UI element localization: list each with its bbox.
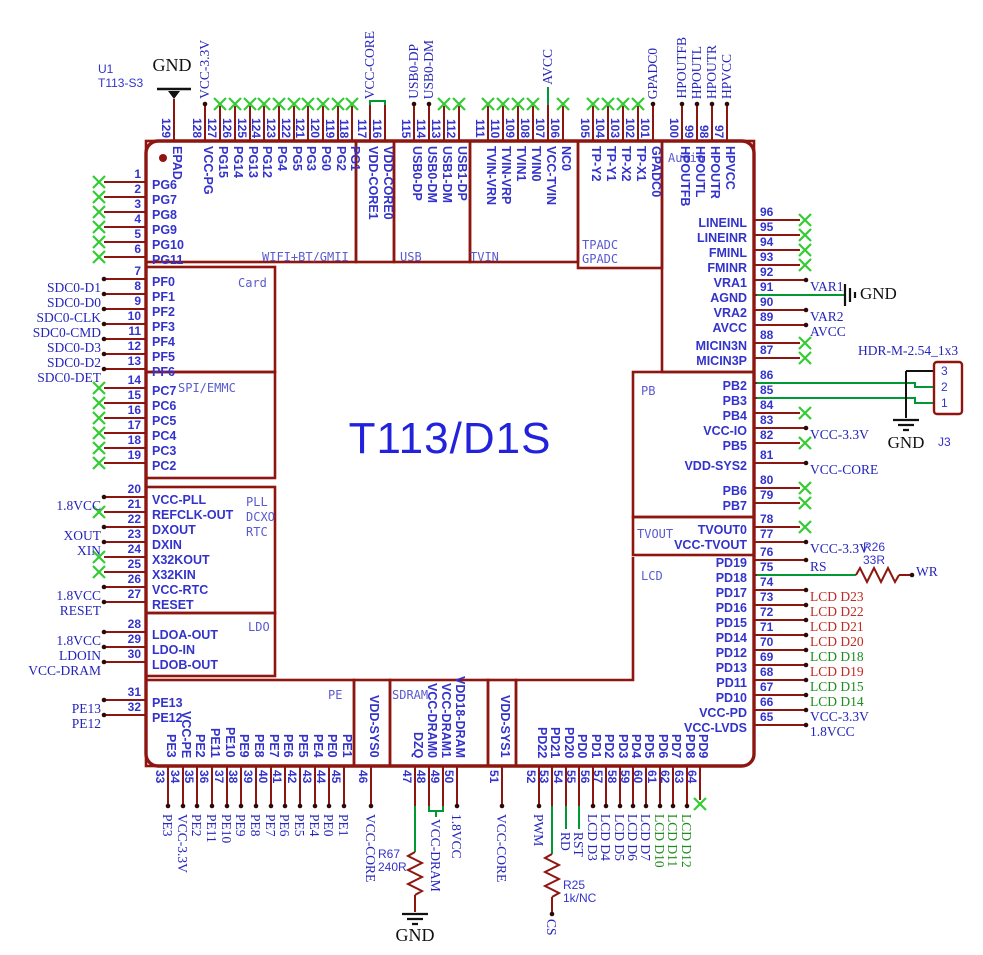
section-label-gpadc: GPADC [582, 253, 618, 266]
pin-name-PD13: PD13 [632, 661, 747, 675]
pin-name-VDD18-DRAM: VDD18-DRAM [453, 676, 467, 758]
net-label-1.8VCC: 1.8VCC [810, 724, 855, 739]
pin-name-PE2: PE2 [193, 734, 207, 758]
net-label-LCD D22: LCD D22 [810, 604, 864, 619]
pin-name-PC5: PC5 [152, 414, 277, 428]
pin-number-118: 118 [337, 119, 350, 138]
pin-name-TVIN0: TVIN0 [529, 146, 543, 181]
net-endpoint-dot [500, 804, 505, 809]
header-pin-2: 2 [941, 381, 948, 394]
no-connect-x [799, 352, 811, 364]
pin-name-HPVCC: HPVCC [723, 146, 737, 190]
net-endpoint-dot [671, 804, 676, 809]
pin-number-98: 98 [697, 125, 710, 138]
gnd-label-header: GND [886, 433, 926, 452]
net-endpoint-dot [427, 102, 432, 107]
pin-name-PB2: PB2 [632, 379, 747, 393]
net-label-HPOUTFB: HPOUTFB [674, 37, 689, 99]
pin-name-TVIN1: TVIN1 [514, 146, 528, 181]
net-label-LCD D19: LCD D19 [810, 664, 864, 679]
net-endpoint-dot [166, 804, 171, 809]
pin-name-PF6: PF6 [152, 365, 277, 379]
net-endpoint-dot [804, 426, 809, 431]
pin-name-PD21: PD21 [548, 727, 562, 758]
net-label-VCC-3.3V: VCC-3.3V [810, 541, 869, 556]
pin-name-LDO-IN: LDO-IN [152, 643, 277, 657]
pin-name-PG14: PG14 [231, 146, 245, 178]
pin-number-49: 49 [428, 770, 441, 783]
pin-name-PD12: PD12 [632, 646, 747, 660]
pin-number-9: 9 [101, 295, 141, 308]
pin-number-109: 109 [503, 118, 516, 138]
pin-number-100: 100 [667, 118, 680, 138]
net-label-1.8VCC: 1.8VCC [11, 633, 101, 648]
pin-name-VDD-SYS2: VDD-SYS2 [632, 459, 747, 473]
net-label-PE9: PE9 [233, 814, 248, 837]
net-label-VAR1: VAR1 [810, 279, 844, 294]
net-endpoint-dot [618, 804, 623, 809]
pin-name-TP-X1: TP-X1 [634, 146, 648, 181]
gnd-symbol-header [893, 420, 919, 430]
pin-name-PB6: PB6 [632, 484, 747, 498]
pin-name-PD19: PD19 [632, 556, 747, 570]
net-endpoint-dot [804, 603, 809, 608]
pin-name-PD4: PD4 [629, 734, 643, 758]
net-label-LCD D20: LCD D20 [810, 634, 864, 649]
pin-name-PG15: PG15 [216, 146, 230, 178]
pin-name-PG9: PG9 [152, 223, 277, 237]
pin-name-X32KIN: X32KIN [152, 568, 277, 582]
pin-name-PG4: PG4 [275, 146, 289, 171]
pin-number-106: 106 [548, 118, 561, 138]
pin-number-129: 129 [159, 118, 172, 138]
pin-name-TP-X2: TP-X2 [619, 146, 633, 181]
pin-name-USB1-DP: USB1-DP [455, 146, 469, 201]
net-label-USB0-DP: USB0-DP [406, 44, 421, 99]
net-endpoint-dot [412, 102, 417, 107]
pin-name-TP-Y2: TP-Y2 [589, 146, 603, 181]
pin-number-113: 113 [429, 119, 442, 138]
pin-name-PC4: PC4 [152, 429, 277, 443]
pin-number-112: 112 [444, 119, 457, 138]
net-label-wr: WR [916, 564, 938, 579]
pin-name-PC7: PC7 [152, 384, 277, 398]
net-label-GPADC0: GPADC0 [645, 48, 660, 99]
pin-number-105: 105 [578, 118, 591, 138]
net-label-LCD D15: LCD D15 [810, 679, 864, 694]
pin-name-PF2: PF2 [152, 305, 277, 319]
pin-number-44: 44 [314, 770, 327, 783]
net-endpoint-dot [604, 804, 609, 809]
no-connect-x [799, 214, 811, 226]
gnd-label-r67: GND [393, 926, 437, 945]
gnd-symbol-r67 [402, 914, 428, 924]
pin-name-DXIN: DXIN [152, 538, 277, 552]
pin-name-VCC-TVIN: VCC-TVIN [544, 146, 558, 205]
net-label-PE8: PE8 [248, 814, 263, 837]
pin-name-VCC-LVDS: VCC-LVDS [632, 721, 747, 735]
pin-name-USB0-DP: USB0-DP [410, 146, 424, 201]
net-label-LCD D7: LCD D7 [638, 814, 653, 861]
pin-name-PG5: PG5 [290, 146, 304, 171]
pin-number-73: 73 [760, 591, 800, 604]
net-label-cs: CS [544, 919, 559, 936]
net-label-PE5: PE5 [292, 814, 307, 837]
pin-number-29: 29 [101, 633, 141, 646]
pin-number-90: 90 [760, 296, 800, 309]
pin-number-11: 11 [101, 325, 141, 338]
pin-name-FMINR: FMINR [632, 261, 747, 275]
pin-number-21: 21 [101, 498, 141, 511]
pin-number-37: 37 [212, 770, 225, 783]
pin-name-DZQ: DZQ [411, 732, 425, 758]
pin-number-28: 28 [101, 618, 141, 631]
net-label-VCC-CORE: VCC-CORE [810, 462, 878, 477]
net-endpoint-dot [455, 804, 460, 809]
pin-number-63: 63 [672, 770, 685, 783]
no-connect-x [799, 259, 811, 271]
pin-name-PE7: PE7 [267, 734, 281, 758]
net-endpoint-dot [804, 648, 809, 653]
pin-number-65: 65 [760, 711, 800, 724]
pin-name-PE3: PE3 [164, 734, 178, 758]
pin-name-VCC-PD: VCC-PD [632, 706, 747, 720]
pin-number-78: 78 [760, 513, 800, 526]
pin-number-16: 16 [101, 404, 141, 417]
pin-name-PD14: PD14 [632, 631, 747, 645]
net-endpoint-dot [181, 804, 186, 809]
pin-number-57: 57 [591, 770, 604, 783]
pin-name-PG7: PG7 [152, 193, 277, 207]
pin-number-12: 12 [101, 340, 141, 353]
net-endpoint-dot [651, 102, 656, 107]
net-endpoint-dot [804, 558, 809, 563]
pin-name-AVCC: AVCC [632, 321, 747, 335]
pin-name-PE10: PE10 [223, 727, 237, 758]
pin-number-59: 59 [618, 770, 631, 783]
pin-number-14: 14 [101, 374, 141, 387]
pin-number-64: 64 [685, 770, 698, 783]
net-label-HPVCC: HPVCC [719, 54, 734, 99]
pin-number-46: 46 [356, 770, 369, 783]
gnd-label-agnd: GND [860, 284, 897, 303]
pin-number-77: 77 [760, 528, 800, 541]
net-endpoint-dot [269, 804, 274, 809]
pin-number-53: 53 [537, 770, 550, 783]
pin-number-104: 104 [593, 118, 606, 138]
section-label-sdram: SDRAM [392, 689, 428, 702]
pin-name-VDD-SYS0: VDD-SYS0 [367, 695, 381, 758]
net-label-XOUT: XOUT [11, 528, 101, 543]
pin-number-55: 55 [564, 770, 577, 783]
pin-number-79: 79 [760, 489, 800, 502]
pin-name-PG0: PG0 [319, 146, 333, 171]
pin-number-30: 30 [101, 648, 141, 661]
resistor-r25[interactable] [545, 854, 559, 916]
net-label-PE4: PE4 [307, 814, 322, 837]
pin-name-PF1: PF1 [152, 290, 277, 304]
net-label-SDC0-CLK: SDC0-CLK [11, 310, 101, 325]
pin-number-20: 20 [101, 483, 141, 496]
pin-number-93: 93 [760, 251, 800, 264]
net-endpoint-dot [313, 804, 318, 809]
pin-name-PE13: PE13 [152, 696, 277, 710]
pin-name-PE4: PE4 [311, 734, 325, 758]
net-label-VAR2: VAR2 [810, 309, 844, 324]
pin-number-5: 5 [101, 228, 141, 241]
schematic-drawing [0, 0, 983, 955]
pin-name-HPOUTL: HPOUTL [693, 146, 707, 197]
net-label-VCC-3.3V: VCC-3.3V [810, 709, 869, 724]
pin-number-8: 8 [101, 280, 141, 293]
pin-number-34: 34 [168, 770, 181, 783]
pin-name-PF5: PF5 [152, 350, 277, 364]
net-endpoint-dot [804, 693, 809, 698]
pin-number-72: 72 [760, 606, 800, 619]
pin-number-33: 33 [153, 770, 166, 783]
pin-name-PG13: PG13 [246, 146, 260, 178]
no-connect-x [799, 407, 811, 419]
pin-name-EPAD: EPAD [170, 146, 184, 180]
net-label-PE3: PE3 [160, 814, 175, 837]
net-endpoint-dot [804, 588, 809, 593]
net-endpoint-dot [804, 278, 809, 283]
pin-name-VDD-CORE0: VDD-CORE0 [381, 146, 395, 220]
net-label-1.8VCC: 1.8VCC [449, 814, 464, 859]
pin-name-PD22: PD22 [535, 727, 549, 758]
net-endpoint-dot [804, 633, 809, 638]
pin-name-PB4: PB4 [632, 409, 747, 423]
pin-name-VCC-DRAM1: VCC-DRAM1 [439, 683, 453, 758]
pin-number-24: 24 [101, 543, 141, 556]
pin-number-107: 107 [533, 118, 546, 138]
net-label-RESET: RESET [11, 603, 101, 618]
net-label-LCD D4: LCD D4 [598, 814, 613, 861]
header-pin-3: 3 [941, 365, 948, 378]
net-endpoint-dot [225, 804, 230, 809]
pin-name-PD7: PD7 [669, 734, 683, 758]
pin-number-48: 48 [414, 770, 427, 783]
chip-title: T113/D1S [337, 414, 563, 464]
net-endpoint-dot [591, 804, 596, 809]
pin-name-VCC-DRAM0: VCC-DRAM0 [425, 683, 439, 758]
section-label-usb: USB [400, 251, 422, 264]
pin-number-80: 80 [760, 474, 800, 487]
net-label-SDC0-D1: SDC0-D1 [11, 280, 101, 295]
header-part-label: HDR-M-2.54_1x3 [858, 343, 958, 358]
no-connect-x [799, 521, 811, 533]
pin-name-PE5: PE5 [296, 734, 310, 758]
pin-number-67: 67 [760, 681, 800, 694]
pin-number-102: 102 [623, 118, 636, 138]
net-endpoint-dot [804, 663, 809, 668]
net-label-vcc-dram: VCC-DRAM [428, 819, 443, 892]
net-label-AVCC: AVCC [810, 324, 846, 339]
pin-number-82: 82 [760, 429, 800, 442]
net-endpoint-dot [644, 804, 649, 809]
pin-number-7: 7 [101, 265, 141, 278]
pin-name-PC6: PC6 [152, 399, 277, 413]
pin-number-87: 87 [760, 344, 800, 357]
gnd-symbol-agnd[interactable] [845, 284, 855, 306]
net-label-AVCC: AVCC [540, 49, 555, 85]
net-endpoint-dot [210, 804, 215, 809]
pin-name-VCC-RTC: VCC-RTC [152, 583, 277, 597]
pin-number-62: 62 [658, 770, 671, 783]
pin-name-PC2: PC2 [152, 459, 277, 473]
net-endpoint-dot [342, 804, 347, 809]
pin-name-PF3: PF3 [152, 320, 277, 334]
pin-number-70: 70 [760, 636, 800, 649]
net-endpoint-dot [239, 804, 244, 809]
pin-name-RESET: RESET [152, 598, 277, 612]
pin-name-PG10: PG10 [152, 238, 277, 252]
net-endpoint-dot [804, 618, 809, 623]
net-label-LCD D14: LCD D14 [810, 694, 864, 709]
pin-name-PG12: PG12 [260, 146, 274, 178]
net-label-LCD D12: LCD D12 [679, 814, 694, 868]
pin-number-74: 74 [760, 576, 800, 589]
pin-name-PG2: PG2 [334, 146, 348, 171]
pin-name-VRA1: VRA1 [632, 276, 747, 290]
pin-number-121: 121 [293, 118, 306, 138]
pin-name-AGND: AGND [632, 291, 747, 305]
pin-name-PD15: PD15 [632, 616, 747, 630]
pin-name-TVIN-VRN: TVIN-VRN [484, 146, 498, 205]
pin-number-58: 58 [605, 770, 618, 783]
net-endpoint-dot [725, 102, 730, 107]
net-label-LCD D23: LCD D23 [810, 589, 864, 604]
pin-name-PD1: PD1 [589, 734, 603, 758]
net-label-PE6: PE6 [277, 814, 292, 837]
pin-number-97: 97 [712, 125, 725, 138]
pin-number-51: 51 [487, 770, 500, 783]
pin-number-35: 35 [182, 770, 195, 783]
pin-name-PD11: PD11 [632, 676, 747, 690]
pin-name-PD3: PD3 [616, 734, 630, 758]
pin-number-83: 83 [760, 414, 800, 427]
net-label-PE0: PE0 [321, 814, 336, 837]
header-refdes: J3 [938, 436, 951, 449]
pin-name-PD0: PD0 [575, 734, 589, 758]
pin1-marker-dot [159, 154, 167, 162]
resistor-r26[interactable] [856, 568, 914, 582]
net-label-RS: RS [810, 559, 827, 574]
pin-number-69: 69 [760, 651, 800, 664]
pin-name-VCC-TVOUT: VCC-TVOUT [632, 538, 747, 552]
pin-number-92: 92 [760, 266, 800, 279]
pin-number-23: 23 [101, 528, 141, 541]
no-connect-x [799, 244, 811, 256]
gnd-label-top: GND [146, 56, 198, 75]
pin-name-PG1: PG1 [348, 146, 362, 171]
net-label-1.8VCC: 1.8VCC [11, 588, 101, 603]
pin-number-15: 15 [101, 389, 141, 402]
r25-value: 1k/NC [563, 892, 596, 905]
pin-number-54: 54 [551, 770, 564, 783]
net-endpoint-dot [680, 102, 685, 107]
pin-number-43: 43 [300, 770, 313, 783]
pin-number-18: 18 [101, 434, 141, 447]
pin-name-TVIN-VRP: TVIN-VRP [499, 146, 513, 204]
pin-number-75: 75 [760, 561, 800, 574]
pin-number-61: 61 [645, 770, 658, 783]
pin-name-LINEINR: LINEINR [632, 231, 747, 245]
net-endpoint-dot [695, 102, 700, 107]
pin-number-41: 41 [270, 770, 283, 783]
pin-name-PB5: PB5 [632, 439, 747, 453]
net-endpoint-dot [195, 804, 200, 809]
pin-number-110: 110 [488, 119, 501, 138]
pin-number-66: 66 [760, 696, 800, 709]
pin-number-26: 26 [101, 573, 141, 586]
net-endpoint-dot [254, 804, 259, 809]
pin-number-42: 42 [285, 770, 298, 783]
pin-name-PG11: PG11 [152, 253, 277, 267]
net-endpoint-dot [804, 461, 809, 466]
pin-name-PF0: PF0 [152, 275, 277, 289]
pin-name-PD17: PD17 [632, 586, 747, 600]
pin-name-PG3: PG3 [304, 146, 318, 171]
net-label-LCD D21: LCD D21 [810, 619, 864, 634]
pin-number-2: 2 [101, 183, 141, 196]
pin-name-VRA2: VRA2 [632, 306, 747, 320]
pin-number-60: 60 [631, 770, 644, 783]
header-pin-1: 1 [941, 397, 948, 410]
net-label-LCD D11: LCD D11 [665, 814, 680, 867]
pin-number-19: 19 [101, 449, 141, 462]
pin-number-101: 101 [638, 118, 651, 138]
pin-name-GPADC0: GPADC0 [649, 146, 663, 197]
component-part-number: T113-S3 [98, 77, 143, 90]
pin-name-PG6: PG6 [152, 178, 277, 192]
pin-name-VDD-SYS1: VDD-SYS1 [498, 695, 512, 758]
pin-name-PD20: PD20 [562, 727, 576, 758]
section-label-tvin: TVIN [470, 251, 499, 264]
pin-number-71: 71 [760, 621, 800, 634]
pin-name-PD9: PD9 [696, 734, 710, 758]
net-endpoint-dot [327, 804, 332, 809]
pin-name-HPOUTR: HPOUTR [708, 146, 722, 199]
pin-number-47: 47 [400, 770, 413, 783]
pin-number-27: 27 [101, 588, 141, 601]
pin-name-X32KOUT: X32KOUT [152, 553, 277, 567]
header-j3[interactable] [893, 362, 962, 430]
pin-number-108: 108 [518, 118, 531, 138]
pin-number-115: 115 [399, 119, 412, 138]
pin-name-PD10: PD10 [632, 691, 747, 705]
net-endpoint-dot [804, 723, 809, 728]
pin-name-LDOB-OUT: LDOB-OUT [152, 658, 277, 672]
pin-number-119: 119 [323, 119, 336, 138]
net-endpoint-dot [658, 804, 663, 809]
section-label-pe: PE [328, 689, 342, 702]
net-label-HPOUTR: HPOUTR [704, 45, 719, 99]
pin-name-LDOA-OUT: LDOA-OUT [152, 628, 277, 642]
pin-number-86: 86 [760, 369, 800, 382]
net-endpoint-dot [804, 540, 809, 545]
net-label-1.8VCC: 1.8VCC [11, 498, 101, 513]
pin-number-22: 22 [101, 513, 141, 526]
net-label-LDOIN: LDOIN [11, 648, 101, 663]
net-endpoint-dot [685, 804, 690, 809]
net-endpoint-dot [804, 708, 809, 713]
pin-number-114: 114 [414, 119, 427, 138]
pin-number-40: 40 [256, 770, 269, 783]
pin-name-TVOUT0: TVOUT0 [632, 523, 747, 537]
pin-number-116: 116 [370, 119, 383, 138]
net-label-USB0-DM: USB0-DM [421, 40, 436, 99]
